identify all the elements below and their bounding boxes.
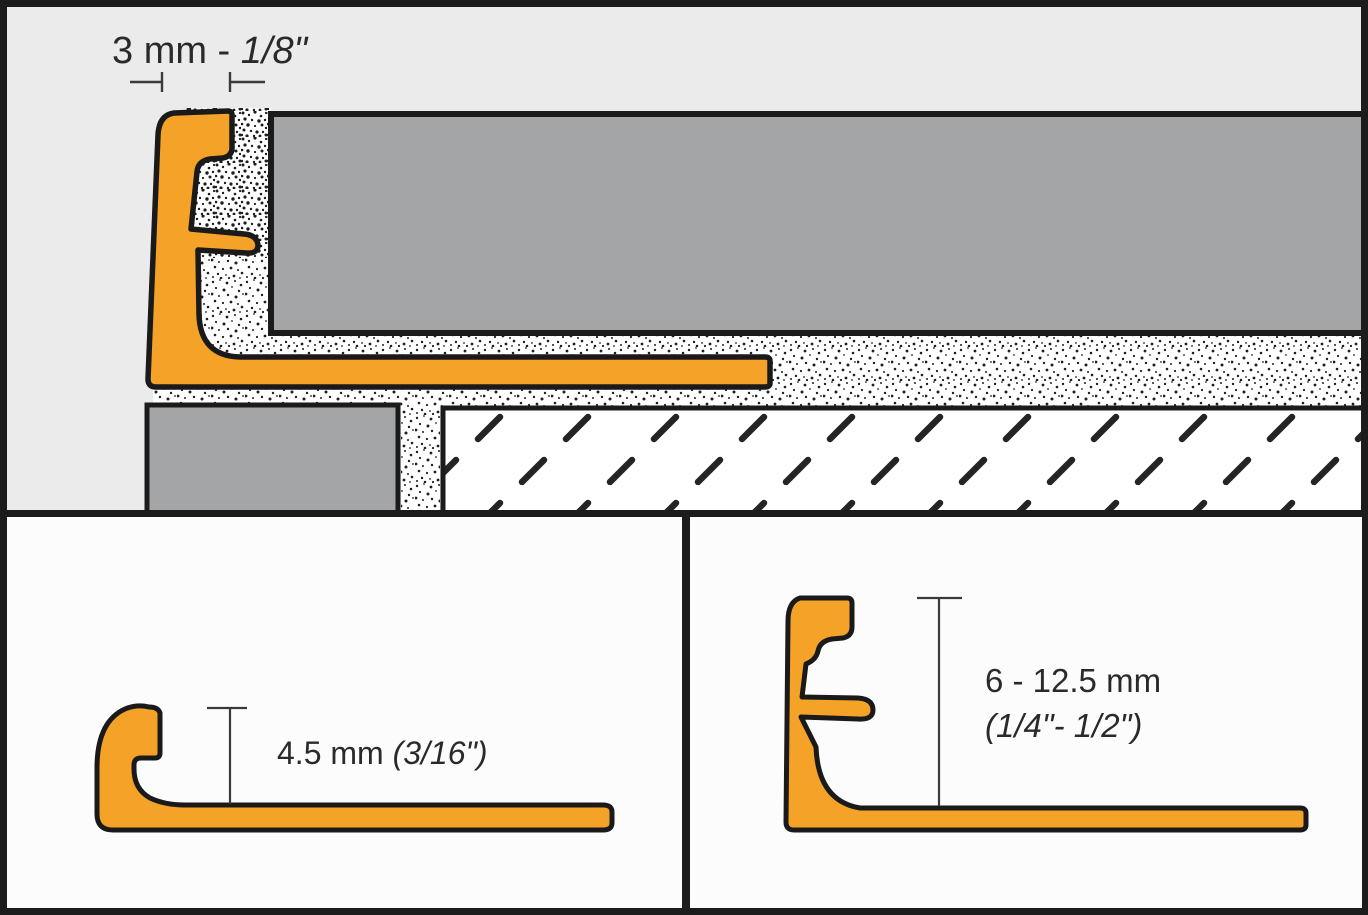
adjacent-floor-covering — [147, 405, 398, 510]
profile-variant-small-panel: 4.5 mm (3/16") — [7, 517, 682, 908]
dimension-label-large-metric: 6 - 12.5 mm — [985, 662, 1161, 699]
dimension-ticks — [130, 72, 265, 92]
substrate — [443, 408, 1361, 510]
installation-cross-section-drawing: 3 mm - 1/8" — [7, 7, 1361, 510]
dimension-line-large — [917, 598, 962, 806]
dimension-label-large-imperial: (1/4"- 1/2") — [985, 707, 1142, 744]
tile — [271, 114, 1361, 333]
dimension-label-top: 3 mm - 1/8" — [112, 30, 309, 72]
dimension-imperial: 1/8" — [241, 30, 309, 72]
dimension-metric: 4.5 mm — [277, 735, 393, 771]
installation-cross-section-panel: 3 mm - 1/8" — [7, 7, 1361, 510]
profile-variant-large-drawing: 6 - 12.5 mm (1/4"- 1/2") — [690, 517, 1362, 908]
dimension-imperial: (3/16") — [393, 735, 488, 771]
mortar-strip — [401, 401, 440, 510]
profile-variant-large-panel: 6 - 12.5 mm (1/4"- 1/2") — [690, 517, 1362, 908]
dimension-line-small — [207, 708, 247, 804]
profile-variant-small-drawing: 4.5 mm (3/16") — [7, 517, 682, 908]
dimension-metric: 3 mm - — [112, 30, 241, 72]
dimension-label-small: 4.5 mm (3/16") — [277, 735, 488, 771]
dimension-annotation-top: 3 mm - 1/8" — [112, 30, 309, 92]
diagram: 3 mm - 1/8" 4.5 mm (3/16") 6 - 12.5 — [0, 0, 1368, 915]
